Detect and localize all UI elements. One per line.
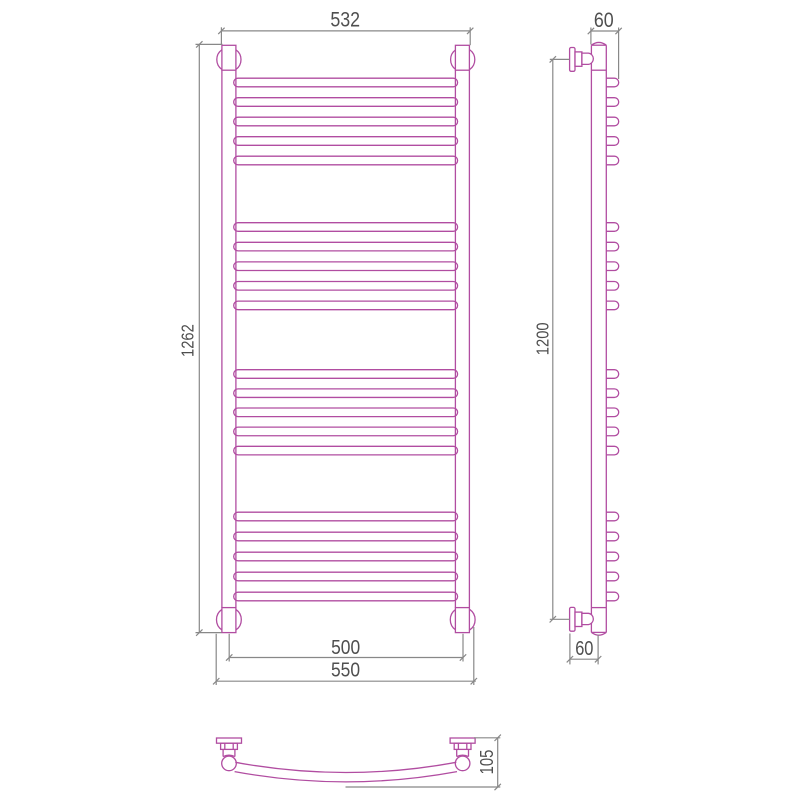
- svg-text:60: 60: [594, 9, 614, 33]
- svg-text:105: 105: [476, 750, 497, 775]
- svg-text:532: 532: [330, 8, 360, 32]
- svg-text:1262: 1262: [178, 324, 198, 357]
- svg-text:1200: 1200: [533, 322, 553, 355]
- svg-text:550: 550: [331, 659, 360, 682]
- svg-text:500: 500: [331, 637, 360, 660]
- svg-text:60: 60: [575, 636, 593, 659]
